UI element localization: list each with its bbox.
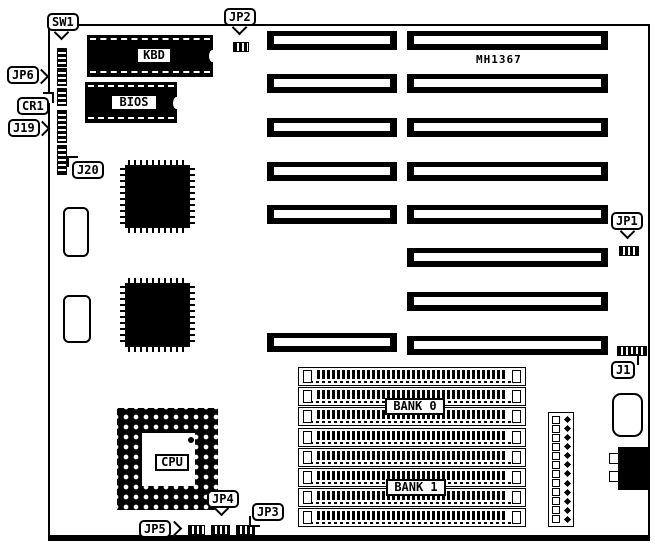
callout-sw1: SW1 [47,13,79,31]
chipset-qfp-chip [125,283,190,347]
simm-clip [303,451,312,464]
pin-stubs [120,168,125,225]
bios-chip-label: BIOS [110,94,158,111]
pin-stubs [190,168,195,225]
power-pin-row [552,425,570,432]
callout-j20: J20 [72,161,104,179]
jp2-jumper [233,42,249,52]
pin-stubs [128,278,187,283]
simm-clip [303,390,312,403]
pin-cell [552,506,560,514]
callout-jp2: JP2 [224,8,256,26]
isa-slot [267,31,397,50]
simm-clip [512,471,521,484]
pin [564,480,571,487]
jp4-jumper [211,525,230,535]
callout-cr1: CR1 [17,97,49,115]
pin [564,425,571,432]
jp5-jumper [188,525,205,535]
pin-stubs [128,160,187,165]
simm-clip [512,431,521,444]
pin-cell [552,425,560,433]
callout-jp4: JP4 [207,490,239,508]
pin-cell [552,488,560,496]
chipset-qfp-chip [125,165,190,228]
pin [564,461,571,468]
pin [564,498,571,505]
simm-socket [298,508,526,527]
power-pin-row [552,498,570,505]
cr1-component [57,88,67,106]
sw1-switch-block [57,48,67,67]
jp1-jumper [619,246,639,256]
pin-stubs [128,228,187,233]
jp6-jumper [57,68,67,86]
bank0-label: BANK 0 [385,398,445,415]
oscillator [63,207,89,257]
callout-jp3: JP3 [252,503,284,521]
isa-slot [407,336,608,355]
pin [564,416,571,423]
simm-clip [512,491,521,504]
isa-slot [407,292,608,311]
chip-notch [209,50,216,62]
pin [564,507,571,514]
speaker-component [612,393,643,437]
pin-cell [552,479,560,487]
power-pin-row [552,516,570,523]
oscillator [63,295,91,343]
j20-header [57,145,67,175]
isa-slot [267,74,397,93]
connector-nub [609,453,619,464]
power-header [548,412,574,527]
pin [564,452,571,459]
board-model-text: MH1367 [476,53,522,66]
cpu-label: CPU [155,454,189,471]
simm-clip [303,511,312,524]
bank1-label: BANK 1 [386,479,446,496]
simm-socket [298,367,526,386]
callout-j19: J19 [8,119,40,137]
simm-clip [303,370,312,383]
power-pin-row [552,461,570,468]
simm-socket [298,448,526,467]
isa-slot [407,205,608,224]
simm-clip [512,451,521,464]
pin [564,516,571,523]
power-pin-row [552,452,570,459]
simm-clip [512,370,521,383]
pin-cell [552,497,560,505]
simm-clip [512,511,521,524]
isa-slot [267,205,397,224]
simm-clip [303,491,312,504]
keyboard-chip-label: KBD [136,47,172,64]
power-pin-row [552,443,570,450]
simm-clip [512,410,521,423]
pin-stubs [190,286,195,344]
pin-stubs [128,347,187,352]
simm-clip [303,471,312,484]
callout-jp6: JP6 [7,66,39,84]
isa-slot [407,74,608,93]
isa-slot [407,118,608,137]
isa-slot [267,333,397,352]
j19-header [57,110,67,143]
callout-j1: J1 [611,361,635,379]
pin-cell [552,434,560,442]
callout-jp5: JP5 [139,520,171,538]
pin1-indicator [188,437,194,443]
isa-slot [407,248,608,267]
simm-clip [303,431,312,444]
pin-cell [552,515,560,523]
simm-clip [512,390,521,403]
pin-cell [552,416,560,424]
pin [564,489,571,496]
simm-socket [298,428,526,447]
isa-slot [267,118,397,137]
isa-slot [407,162,608,181]
pin-stubs [120,286,125,344]
pin [564,470,571,477]
isa-slot [407,31,608,50]
power-pin-row [552,489,570,496]
pin-cell [552,452,560,460]
connector-nub [609,471,619,482]
power-pin-row [552,480,570,487]
power-pin-row [552,470,570,477]
keyboard-din-connector [618,447,650,490]
pin [564,443,571,450]
chip-notch [173,97,180,109]
pin-cell [552,443,560,451]
pin-cell [552,470,560,478]
pin-cell [552,461,560,469]
power-pin-row [552,507,570,514]
simm-clip [303,410,312,423]
isa-slot [267,162,397,181]
power-pin-row [552,434,570,441]
callout-jp1: JP1 [611,212,643,230]
pin [564,434,571,441]
motherboard-diagram: MH1367 KBD BIOS CPU [0,0,655,545]
power-pin-row [552,416,570,423]
